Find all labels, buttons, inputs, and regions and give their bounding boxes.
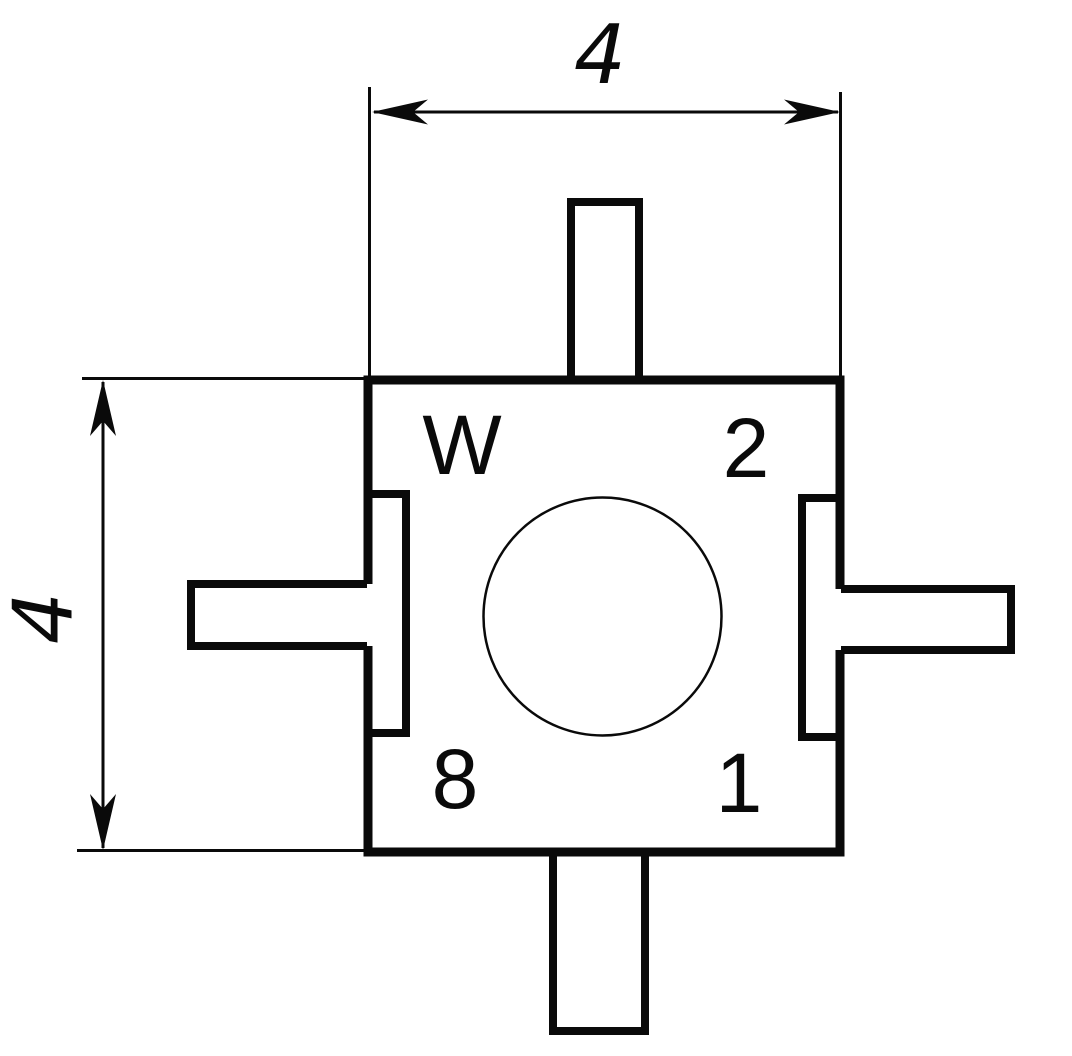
label-top-left: W (422, 398, 501, 492)
pin-left-flange (367, 494, 406, 733)
label-bottom-right: 1 (716, 736, 763, 830)
pin-top (571, 202, 639, 384)
terminal-labels: W 2 8 1 (422, 398, 769, 830)
label-top-right: 2 (723, 401, 770, 495)
pin-right-arm (841, 589, 1011, 650)
dimension-height: 4 (0, 379, 366, 851)
label-bottom-left: 8 (432, 732, 479, 826)
engineering-drawing: 4 4 W 2 8 1 (0, 0, 1072, 1056)
pin-right-flange (802, 498, 841, 737)
component-pins (191, 202, 1011, 1031)
height-dimension-value: 4 (0, 592, 92, 644)
center-hole-circle (484, 498, 722, 736)
dimension-width: 4 (370, 8, 841, 380)
pin-left-arm (191, 584, 367, 646)
pin-bottom (553, 848, 645, 1031)
drawing-sheet: 4 4 W 2 8 1 (0, 0, 1072, 1056)
width-dimension-value: 4 (574, 8, 626, 103)
